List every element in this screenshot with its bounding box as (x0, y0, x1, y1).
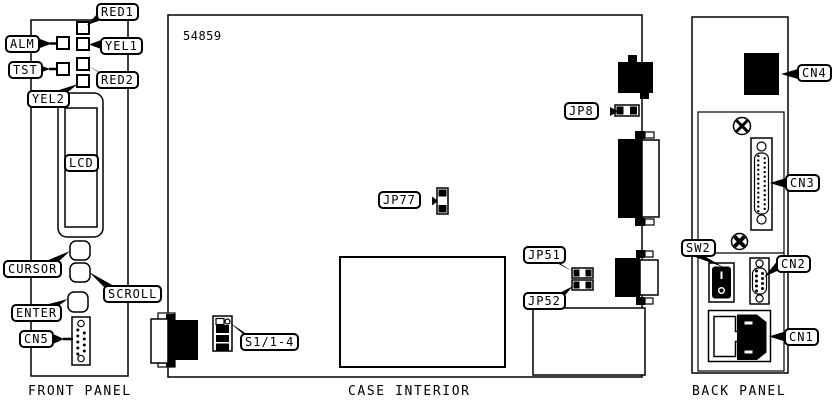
callout-jp52: JP52 (523, 292, 566, 310)
jumper-jp77 (437, 188, 448, 214)
callout-scroll: SCROLL (103, 285, 162, 303)
callout-red2: RED2 (96, 71, 139, 89)
power-entry-cn1 (709, 311, 771, 362)
cursor-button (70, 241, 90, 260)
board-number: 54859 (183, 29, 222, 43)
callout-yel2: YEL2 (27, 90, 70, 108)
connector-cn4-edge (618, 55, 653, 99)
screw-icon (732, 234, 748, 250)
callout-sw2: SW2 (681, 239, 716, 257)
callout-cn2: CN2 (776, 255, 811, 273)
callout-jp8: JP8 (564, 102, 599, 120)
connector-cn5 (72, 317, 90, 365)
callout-s1-1-4: S1/1-4 (240, 333, 299, 351)
led-tst (57, 63, 69, 75)
jumper-jp51 (572, 268, 593, 278)
enter-button (68, 292, 88, 312)
connector-cn5-edge (151, 313, 198, 367)
front-panel-buttons (68, 241, 90, 312)
power-supply-component (533, 308, 645, 375)
callout-cn1: CN1 (784, 328, 819, 346)
led-yel1 (77, 38, 89, 50)
led-red2 (77, 58, 89, 70)
callout-red1: RED1 (96, 3, 139, 21)
front-panel-title: FRONT PANEL (28, 384, 132, 399)
main-board-component (340, 257, 505, 367)
power-switch-sw2 (709, 263, 734, 302)
back-panel-title: BACK PANEL (692, 384, 786, 399)
connector-cn4 (744, 53, 779, 95)
dip-switch-s1 (213, 316, 232, 351)
case-interior-title: CASE INTERIOR (348, 384, 471, 399)
callout-jp77: JP77 (378, 191, 421, 209)
hardware-layout-diagram: 54859 RED1 ALM YEL1 TST RED2 YEL2 LCD CU… (0, 0, 839, 409)
callout-jp51: JP51 (523, 246, 566, 264)
led-yel2 (77, 75, 89, 87)
jumper-jp8 (615, 105, 639, 116)
connector-cn3 (751, 138, 772, 230)
callout-alm: ALM (5, 35, 40, 53)
callout-enter: ENTER (11, 304, 62, 322)
led-indicators (57, 22, 89, 87)
led-red1 (77, 22, 89, 34)
callout-tst: TST (8, 61, 43, 79)
callout-cursor: CURSOR (3, 260, 62, 278)
connector-cn2-edge (615, 250, 658, 305)
connector-cn2 (750, 258, 769, 304)
scroll-button (70, 263, 90, 282)
callout-cn5: CN5 (19, 330, 54, 348)
connector-cn3-edge (618, 131, 659, 226)
screw-icon (734, 118, 751, 135)
callout-yel1: YEL1 (100, 37, 143, 55)
callout-cn3: CN3 (785, 174, 820, 192)
callout-lcd: LCD (64, 154, 99, 172)
callout-cn4: CN4 (797, 64, 832, 82)
jumper-jp52 (572, 280, 593, 290)
led-alm (57, 37, 69, 49)
